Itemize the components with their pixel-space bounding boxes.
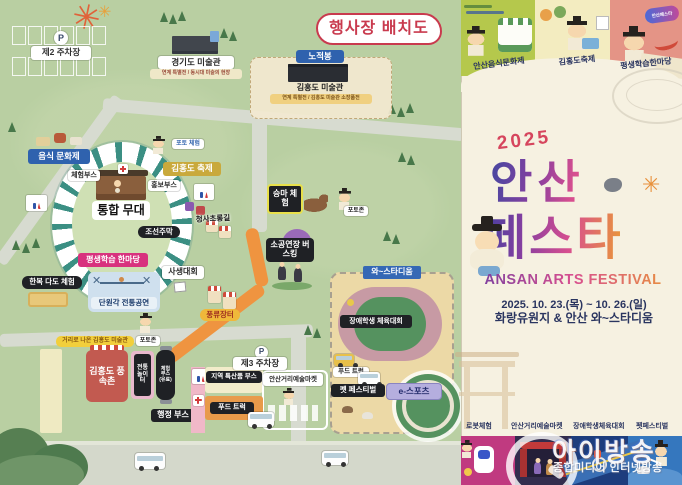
performer-icon [294, 268, 302, 282]
card-illustration [596, 16, 609, 30]
kimhongdo-festival-label: 김홍도 축제 [163, 162, 221, 176]
stage-illustration [96, 176, 146, 200]
kimhongdo-museum-sub: 연계 특별전 / 김홍도 미술관 소장품전 [270, 94, 372, 104]
disabled-sports-label: 장애학생 체육대회 [340, 315, 412, 328]
kimhongdo-museum-label: 김홍도 미술관 [292, 83, 348, 94]
page-title: 행사장 배치도 [316, 13, 442, 45]
tree-icon [169, 14, 177, 24]
medical-cross-icon [193, 395, 204, 406]
easel-icon [174, 281, 187, 292]
joseon-tavern-label: 조선주막 [138, 226, 180, 238]
photozone-label: 포토존 [344, 206, 368, 216]
tea-mat-icon [28, 292, 68, 307]
parking2-badge: P [54, 31, 68, 45]
building-strip [40, 349, 62, 433]
tent-icon [185, 202, 194, 211]
bus-icon [135, 453, 165, 469]
horse-icon [304, 194, 328, 212]
lantern-road-label: 청사초롱길 [190, 213, 237, 226]
folk-village-label: 김홍도 풍속촌 [86, 350, 128, 402]
market-stall-icon [208, 286, 221, 303]
tree-icon [22, 243, 30, 253]
food-illustration [54, 133, 66, 143]
fireworks-icon: ✳ [98, 2, 111, 22]
runner-icon [347, 299, 354, 306]
admin-booth-label: 행정 부스 [151, 409, 195, 422]
event-pet-label: 펫페스티벌 [636, 421, 668, 431]
dog-icon [362, 412, 373, 419]
character-icon [283, 388, 295, 405]
pungnyu-market-label: 풍류장터 [200, 309, 240, 321]
tree-icon [32, 238, 40, 248]
cart-illustration [582, 38, 599, 49]
photozone-label: 포토존 [136, 336, 160, 346]
tent-icon [219, 226, 231, 238]
experience-booth-label: 체험부스 [68, 170, 100, 181]
lifelong-learning-label: 평생학습 한마당 [78, 253, 148, 267]
danwongak-label: 단원각 전통공연 [91, 297, 157, 309]
bus-icon [322, 451, 348, 465]
gyeonggi-museum-sub: 연계 특별전 / 동시대 미술의 현장 [150, 69, 242, 79]
esports-label: e-스포츠 [386, 383, 442, 400]
poster-subtitle-en: ANSAN ARTS FESTIVAL [477, 272, 669, 288]
food-truck-icon [334, 354, 354, 366]
food-truck-illustration [498, 18, 532, 52]
tightrope-line [100, 282, 144, 284]
tightrope-walker [119, 277, 124, 282]
stadium-sketch [626, 79, 682, 111]
tree-icon [160, 12, 168, 22]
robot-face [478, 450, 490, 459]
tree-illustration [554, 6, 566, 18]
horse-riding-label: 승마 체험 [267, 184, 303, 214]
tree-icon [406, 103, 414, 113]
photo-experience-label: 포토 체험 [172, 139, 204, 149]
promotion-booth-label: 홍보부스 [148, 180, 180, 191]
food-truck-icon [248, 412, 274, 427]
performer-icon [278, 266, 286, 280]
food-truck-label: 푸드 트럭 [210, 402, 254, 414]
sketch-contest-label: 사생대회 [162, 266, 204, 279]
busking-label: 소공연장 버스킹 [266, 238, 314, 262]
medical-cross-icon [118, 164, 128, 174]
gyeonggi-museum-glass [210, 31, 219, 42]
event-robot-label: 로봇체험 [466, 421, 492, 431]
performer-dot [114, 180, 121, 187]
traditional-playground-label: 전통 놀이터 [134, 354, 151, 396]
main-stage-label: 통합 무대 [92, 201, 150, 220]
gyeonggi-museum-label: 경기도 미술관 [158, 56, 234, 69]
tightrope-icon: ✕ [142, 274, 151, 287]
food-illustration [36, 137, 50, 146]
tree-icon [397, 107, 405, 117]
sparkle-icon: ✳ [642, 172, 660, 198]
kimhongdo-museum-building [288, 64, 348, 82]
local-goods-label: 지역 특산품 부스 [206, 371, 262, 383]
parking3-label: 제3 주차장 [233, 357, 287, 370]
hanbok-tea-label: 한복 다도 체험 [22, 276, 82, 289]
restroom-icon [26, 195, 47, 211]
pet-festival-label: 펫 페스티벌 [331, 384, 385, 397]
character-icon [466, 26, 486, 56]
food-illustration [70, 137, 82, 145]
mascot-hat-top [481, 216, 493, 226]
paid-booth-label: 체험 부스 (유료) [156, 350, 175, 400]
sidewalk-edge [0, 441, 461, 445]
parking2-label: 제2 주차장 [31, 46, 91, 60]
tree-icon [229, 31, 237, 41]
character-icon [139, 313, 152, 333]
stadium-label: 와~스타디움 [363, 266, 421, 279]
road-vertical-upper [252, 118, 267, 232]
food-culture-festival-label: 음식 문화제 [28, 149, 90, 164]
tightrope-icon: ✕ [92, 274, 101, 287]
watermark-subtitle: 종합미디어 인터넷방송 [553, 459, 663, 475]
character-icon [461, 440, 473, 458]
poster-venue: 화랑유원지 & 안산 와~스타디움 [480, 309, 668, 326]
street-art-market-label: 안산거리예술마켓 [263, 373, 323, 386]
script-decoration [466, 11, 504, 14]
tree-icon [313, 328, 321, 338]
script-decoration [464, 5, 492, 8]
event-street-market-label: 안산거리예술마켓 [511, 421, 563, 431]
festival-map-scan: ✳ ✳ P 제2 주차장 경기도 미술관 연계 특별전 / 동시대 미술의 현장… [0, 0, 682, 485]
parking-grid [268, 405, 318, 421]
event-disabled-sports-label: 장애학생체육대회 [573, 421, 625, 431]
character-icon [152, 136, 165, 154]
tree-illustration [540, 9, 552, 21]
restroom-icon [194, 184, 214, 200]
dog-icon [342, 406, 353, 413]
tree-icon [178, 11, 186, 21]
market-stall-icon [223, 292, 236, 309]
lightbulb-icon [464, 468, 472, 476]
tree-icon [220, 28, 228, 38]
nojeokbong-label: 노적봉 [296, 50, 344, 63]
busking-ground [272, 282, 312, 290]
